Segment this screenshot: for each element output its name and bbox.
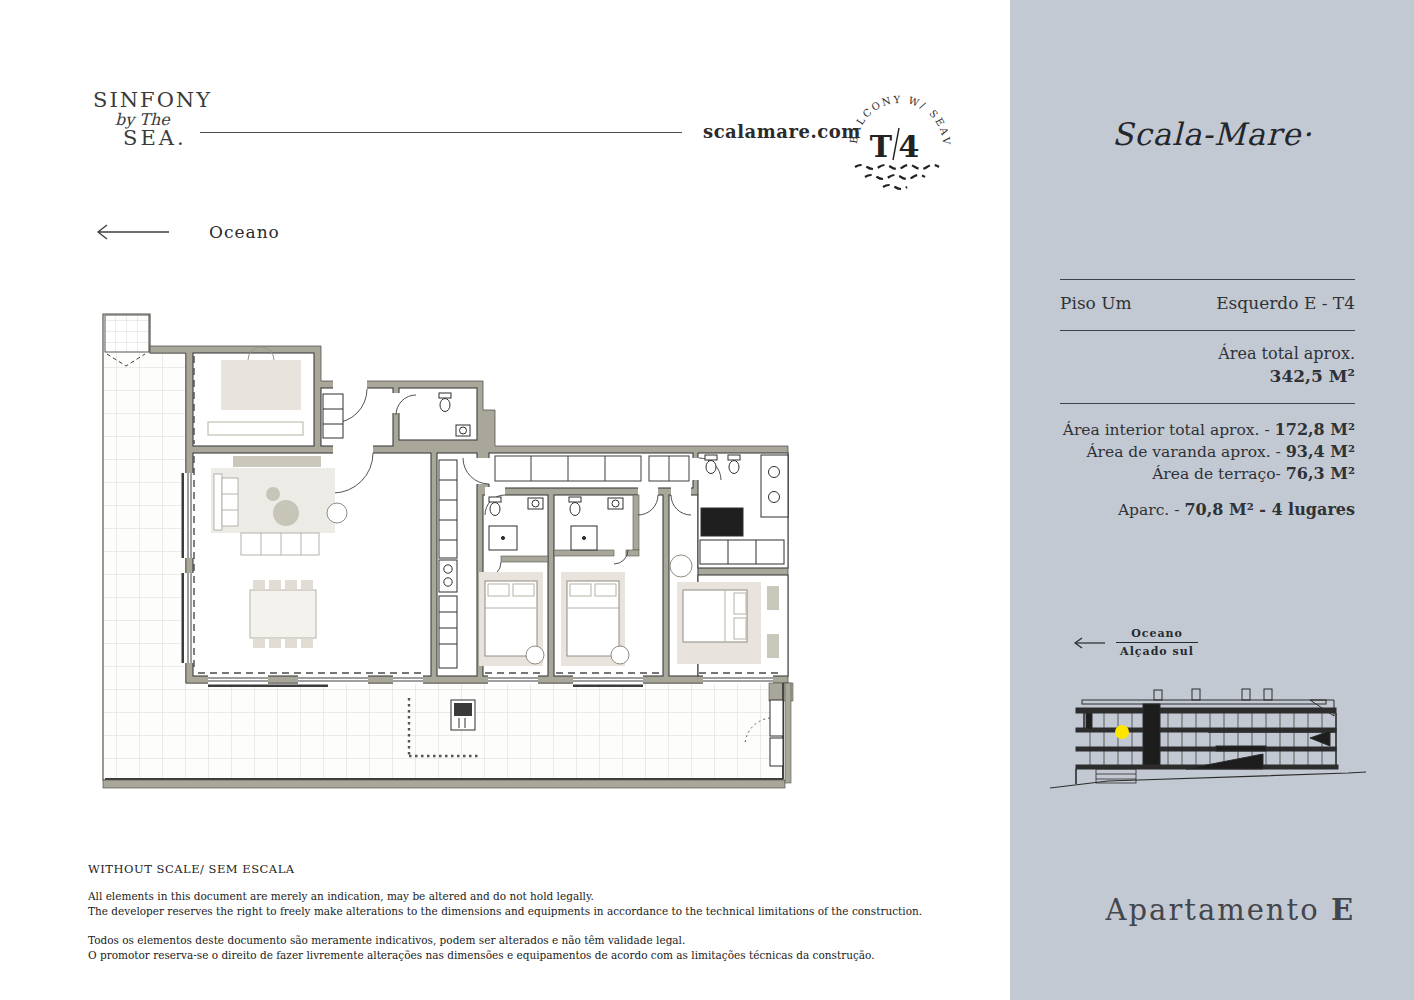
floor-plan: [93, 298, 803, 798]
elevation-core: [1143, 704, 1160, 765]
interior-area-label: Área interior total aprox. -: [1063, 421, 1275, 439]
kitchen-fixtures: [439, 460, 457, 668]
floor-label: Piso Um: [1060, 293, 1132, 313]
badge-unit-t: T: [870, 129, 893, 164]
left-arrow-icon: [93, 224, 171, 240]
info-panel: Scala-Mare· Piso Um Esquerdo E - T4 Área…: [1010, 0, 1414, 1000]
total-area-label: Área total aprox.: [1218, 344, 1355, 363]
terrace-area-value: 76,3 M²: [1286, 464, 1355, 483]
balcony-area-value: 93,4 M²: [1286, 442, 1355, 461]
disclaimer-en: All elements in this document are merely…: [88, 889, 922, 919]
apartment-location-marker: [1115, 725, 1129, 739]
bathtub: [701, 508, 743, 536]
interior-area: Área interior total aprox. - 172,8 M²: [1063, 419, 1355, 441]
unit-label: Esquerdo E - T4: [1216, 293, 1355, 313]
terrace-area: Área de terraço- 76,3 M²: [1152, 463, 1355, 485]
elevation-facade-label: Alçado sul: [1120, 645, 1194, 658]
left-arrow-icon: [1072, 636, 1106, 650]
disclaimer-en-line2: The developer reserves the right to free…: [88, 904, 922, 919]
balcony-seaview-badge: BALCONY W/ SEAVIEW T 4: [843, 82, 957, 198]
sinfony-logo: SINFONY by The SEA.: [93, 90, 213, 149]
parking-label: Aparc. -: [1118, 501, 1184, 519]
divider: [1060, 279, 1355, 280]
floorplan-sheet: SINFONY by The SEA. scalamare.com BALCON…: [0, 0, 1414, 1000]
bedroom-2-furniture: [479, 572, 544, 666]
bedroom-1-furniture: [208, 347, 303, 435]
elevation-ramp: [1186, 754, 1263, 769]
disclaimer-block: WITHOUT SCALE/ SEM ESCALA All elements i…: [88, 862, 922, 977]
corridor-closets: [495, 456, 689, 481]
disclaimer-pt: Todos os elementos deste documento são m…: [88, 933, 922, 963]
interior-area-value: 172,8 M²: [1275, 420, 1355, 439]
parking-value: 70,8 M² - 4 lugares: [1184, 500, 1355, 519]
bedroom-3-furniture: [561, 572, 629, 666]
elevation-labels: Oceano Alçado sul: [1072, 627, 1198, 658]
floor-unit-row: Piso Um Esquerdo E - T4: [1060, 293, 1355, 313]
dining-set: [250, 580, 316, 648]
header-divider: [200, 132, 682, 133]
divider: [1060, 403, 1355, 404]
building-elevation: [1048, 676, 1370, 796]
terrace-outer-band: [103, 780, 785, 788]
apartment-letter: E: [1331, 893, 1355, 927]
hall-closet: [323, 394, 343, 438]
apartment-title: Apartamento E: [1106, 893, 1355, 927]
scale-note: WITHOUT SCALE/ SEM ESCALA: [88, 862, 922, 877]
apartment-title-prefix: Apartamento: [1106, 893, 1331, 927]
disclaimer-pt-line1: Todos os elementos deste documento são m…: [88, 933, 922, 948]
balcony-area: Área de varanda aprox. - 93,4 M²: [1086, 441, 1355, 463]
website-url[interactable]: scalamare.com: [703, 121, 861, 142]
divider: [1060, 330, 1355, 331]
scala-mare-logo: Scala-Mare·: [1010, 116, 1414, 152]
balcony-area-label: Área de varanda aprox. -: [1086, 443, 1285, 461]
ocean-orientation: Oceano: [93, 222, 280, 242]
disclaimer-pt-line2: O promotor reserva-se o direito de fazer…: [88, 948, 922, 963]
disclaimer-en-line1: All elements in this document are merely…: [88, 889, 922, 904]
total-area-value: 342,5 M²: [1270, 366, 1355, 386]
badge-unit-n: 4: [899, 129, 920, 164]
parking-info: Aparc. - 70,8 M² - 4 lugares: [1118, 499, 1355, 521]
logo-line1: SINFONY: [93, 90, 213, 111]
badge-waves-icon: [855, 165, 939, 189]
terrace-area-label: Área de terraço-: [1152, 465, 1286, 483]
elevation-ocean-label: Oceano: [1131, 627, 1183, 640]
elevation-divider: [1116, 642, 1198, 643]
ocean-label: Oceano: [209, 222, 280, 242]
